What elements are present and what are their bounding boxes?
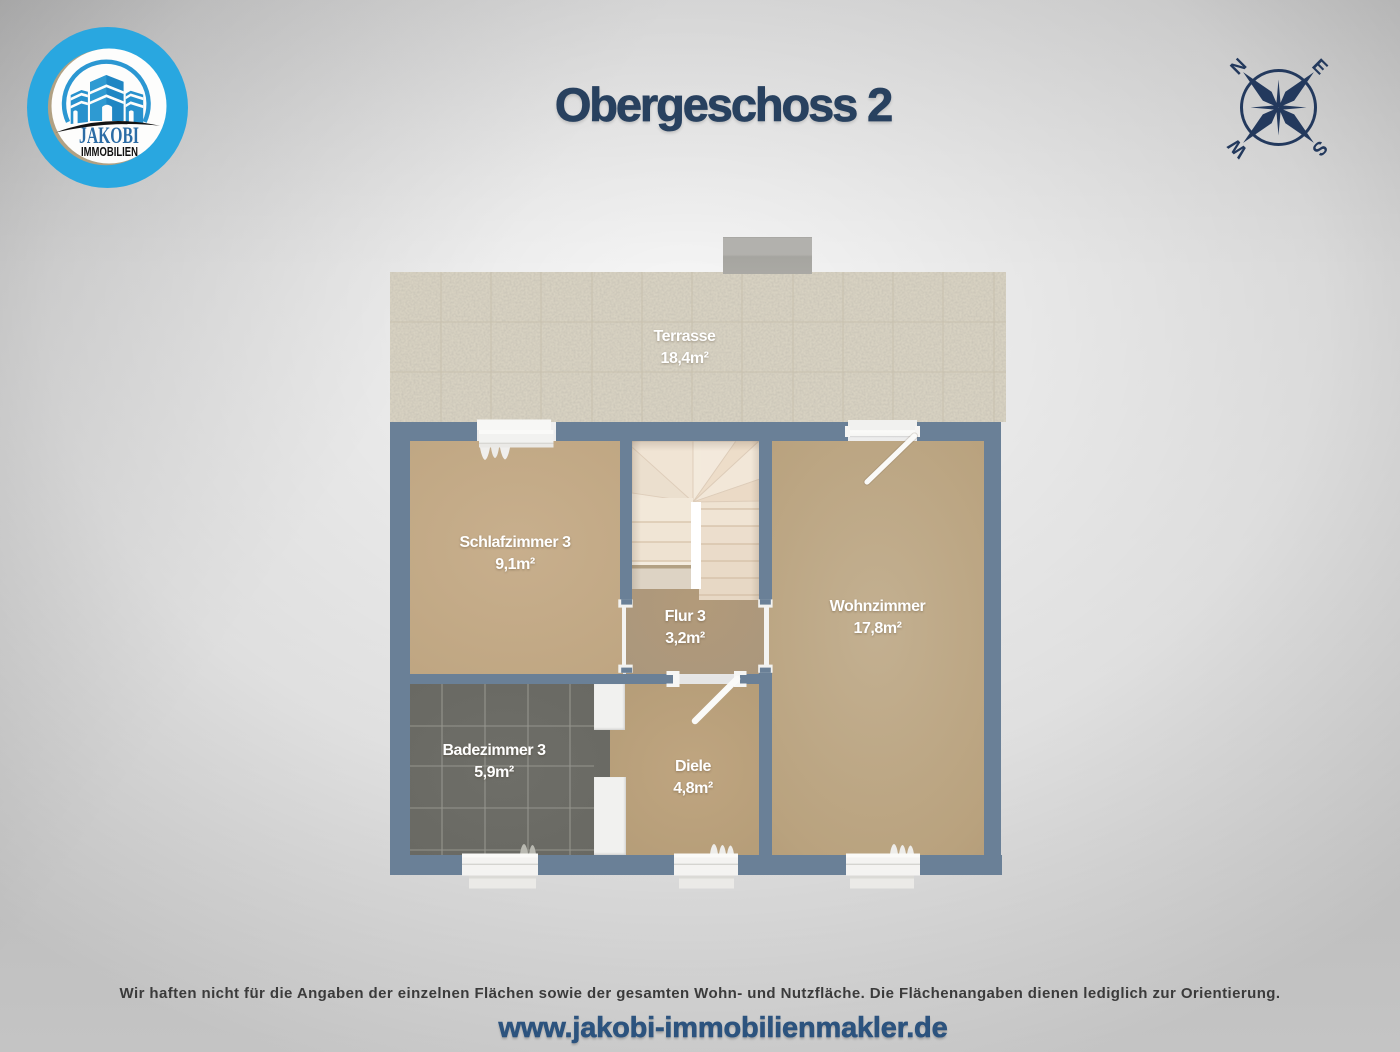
svg-text:IMMOBILIEN: IMMOBILIEN bbox=[81, 145, 138, 159]
